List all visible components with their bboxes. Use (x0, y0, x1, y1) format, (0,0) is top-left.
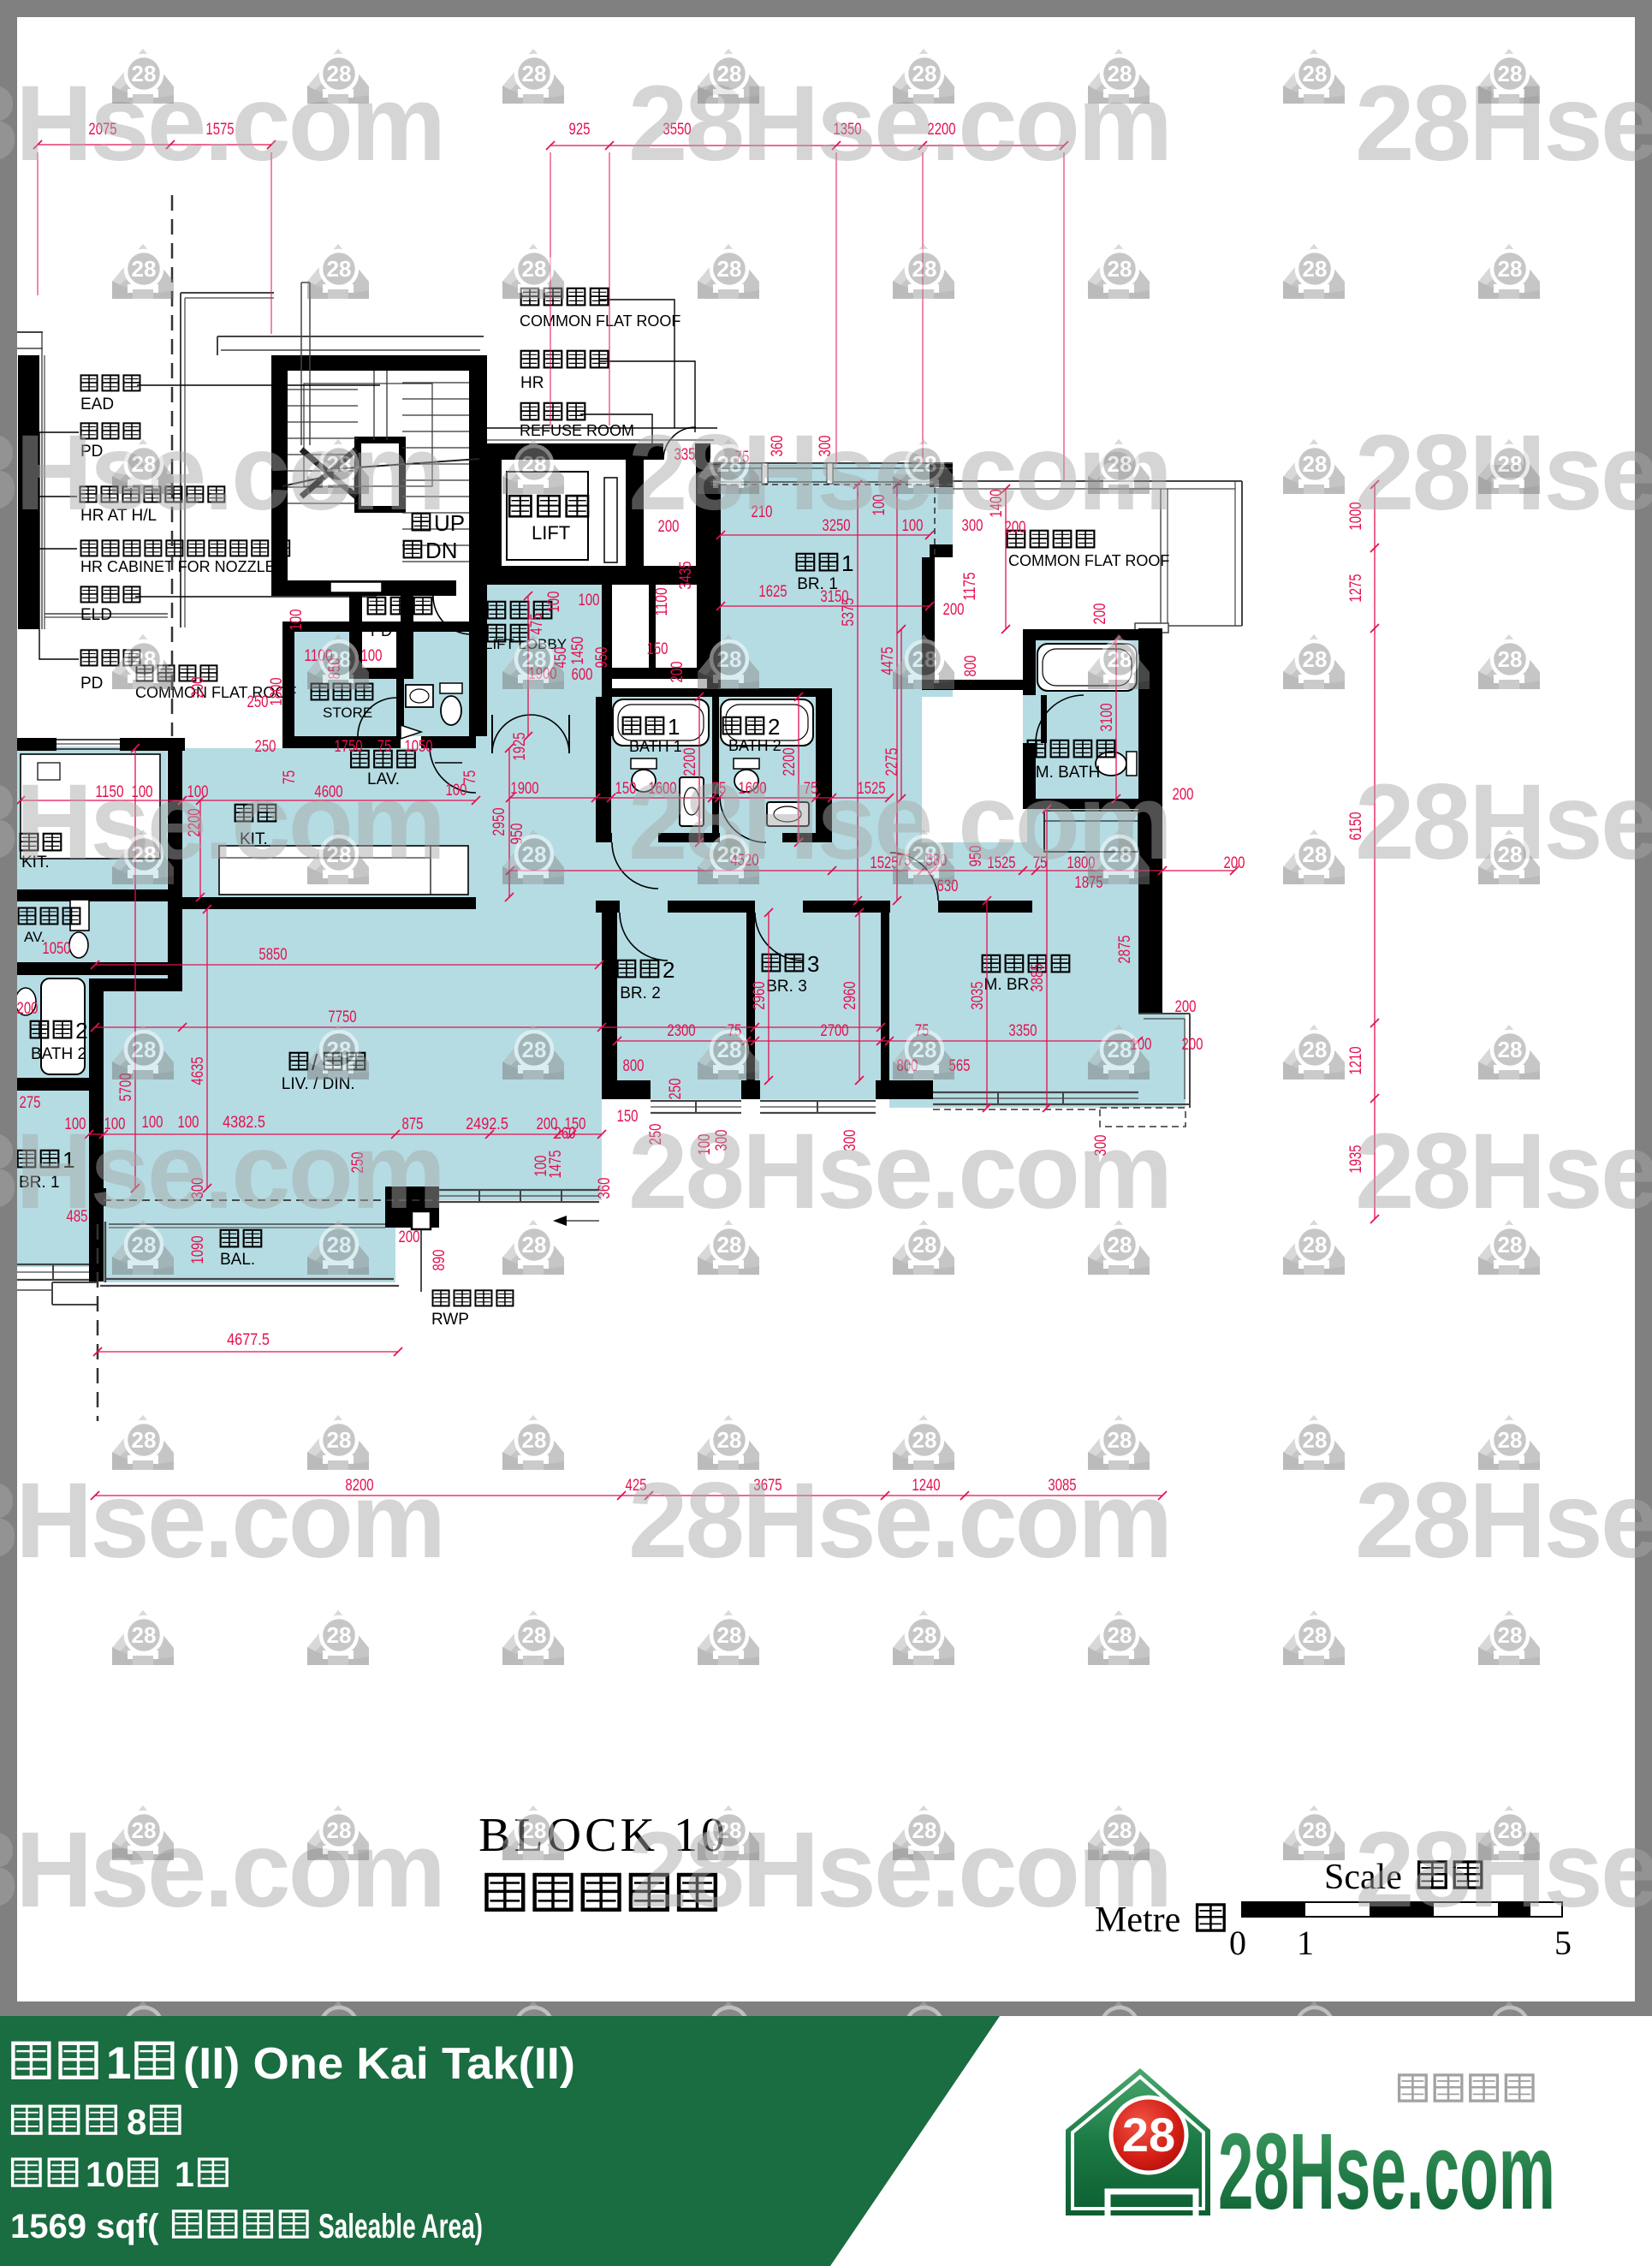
svg-text:100: 100 (288, 610, 306, 631)
svg-text:200: 200 (189, 677, 207, 699)
svg-text:200: 200 (399, 1228, 420, 1246)
svg-text:275: 275 (20, 1094, 41, 1112)
svg-text:150: 150 (647, 640, 669, 658)
svg-text:BAL.: BAL. (220, 1251, 255, 1269)
svg-text:28Hse.com: 28Hse.com (0, 64, 443, 183)
svg-text:1925: 1925 (511, 732, 529, 760)
svg-text:28Hse.com: 28Hse.com (628, 1461, 1170, 1580)
svg-text:200: 200 (1182, 1036, 1203, 1054)
svg-text:REFUSE ROOM: REFUSE ROOM (520, 422, 634, 439)
svg-text:BR. 2: BR. 2 (620, 984, 661, 1002)
svg-text:4677.5: 4677.5 (227, 1331, 270, 1349)
svg-text:200: 200 (1173, 786, 1194, 804)
svg-text:1090: 1090 (189, 1235, 207, 1264)
svg-text:2300: 2300 (667, 1022, 695, 1040)
svg-text:2: 2 (768, 714, 780, 740)
svg-text:1900: 1900 (510, 780, 538, 798)
svg-text:475: 475 (528, 614, 546, 635)
svg-text:10: 10 (86, 2155, 125, 2194)
svg-text:800: 800 (962, 656, 980, 677)
svg-text:600: 600 (572, 666, 593, 684)
svg-text:1: 1 (668, 714, 680, 740)
svg-text:1275: 1275 (1347, 574, 1365, 602)
svg-text:DN: DN (425, 538, 458, 563)
svg-text:28Hse.com: 28Hse.com (0, 1112, 443, 1231)
svg-text:100: 100 (532, 1156, 550, 1177)
svg-text:800: 800 (623, 1057, 645, 1075)
svg-text:3: 3 (807, 951, 819, 977)
svg-text:3350: 3350 (1008, 1022, 1037, 1040)
svg-text:1450: 1450 (569, 636, 587, 664)
svg-text:1: 1 (106, 2038, 131, 2089)
svg-text:BR. 3: BR. 3 (766, 978, 807, 996)
svg-text:890: 890 (431, 1250, 449, 1271)
svg-text:COMMON FLAT ROOF: COMMON FLAT ROOF (520, 312, 680, 330)
svg-text:28Hse.com: 28Hse.com (628, 1112, 1170, 1231)
svg-text:1: 1 (1297, 1924, 1314, 1962)
svg-text:RWP: RWP (431, 1311, 469, 1329)
svg-text:2492.5: 2492.5 (466, 1115, 508, 1133)
svg-text:STORE: STORE (323, 705, 372, 721)
svg-text:28Hse.com: 28Hse.com (1218, 2111, 1555, 2232)
svg-text:PD: PD (371, 622, 392, 639)
svg-text:28Hse.com: 28Hse.com (1355, 1112, 1652, 1231)
svg-text:200: 200 (1175, 998, 1197, 1016)
svg-text:28Hse.com: 28Hse.com (0, 413, 443, 532)
svg-text:3885: 3885 (1029, 963, 1047, 991)
svg-text:260: 260 (555, 1125, 576, 1143)
svg-text:2960: 2960 (841, 981, 859, 1009)
svg-text:3435: 3435 (677, 561, 695, 589)
svg-text:200: 200 (17, 1000, 39, 1018)
svg-text:28Hse.com: 28Hse.com (0, 1811, 443, 1930)
svg-text:3035: 3035 (969, 981, 987, 1009)
svg-text:200: 200 (1091, 604, 1109, 625)
svg-text:1050: 1050 (404, 738, 432, 756)
svg-text:200: 200 (1224, 854, 1245, 872)
svg-text:BATH 1: BATH 1 (629, 738, 682, 755)
svg-text:HR: HR (520, 374, 544, 392)
svg-text:100: 100 (361, 647, 383, 665)
svg-text:ELD: ELD (80, 606, 112, 624)
svg-text:950: 950 (593, 647, 611, 669)
svg-text:200: 200 (669, 662, 686, 683)
svg-text:COMMON FLAT ROOF: COMMON FLAT ROOF (1008, 552, 1169, 569)
svg-text:28Hse.com: 28Hse.com (0, 1461, 443, 1580)
svg-text:1750: 1750 (334, 738, 362, 756)
svg-text:PD: PD (80, 675, 103, 693)
svg-text:28Hse.com: 28Hse.com (1355, 1461, 1652, 1580)
svg-text:28Hse.com: 28Hse.com (0, 763, 443, 882)
svg-text:2950: 2950 (490, 807, 508, 836)
svg-text:200: 200 (943, 601, 965, 619)
svg-text:(II) One Kai Tak(II): (II) One Kai Tak(II) (183, 2039, 575, 2089)
svg-text:EAD: EAD (80, 396, 114, 413)
svg-text:1: 1 (175, 2155, 194, 2194)
svg-text:Saleable Area): Saleable Area) (318, 2208, 483, 2245)
svg-text:3100: 3100 (1098, 703, 1116, 731)
svg-text:250: 250 (255, 738, 276, 756)
svg-text:8: 8 (127, 2102, 146, 2142)
svg-text:2875: 2875 (1116, 935, 1134, 963)
svg-text:5850: 5850 (258, 946, 287, 964)
svg-text:1175: 1175 (961, 572, 979, 600)
svg-text:28: 28 (1122, 2108, 1175, 2162)
svg-text:1: 1 (841, 550, 853, 576)
svg-text:BATH 2: BATH 2 (31, 1045, 86, 1063)
svg-text:1569 sqf(: 1569 sqf( (10, 2208, 159, 2245)
svg-text:100: 100 (545, 592, 563, 613)
svg-text:1800: 1800 (268, 677, 286, 705)
svg-text:100: 100 (446, 782, 467, 800)
svg-text:M. BR.: M. BR. (984, 976, 1034, 994)
svg-text:2: 2 (663, 957, 674, 983)
svg-text:HR CABINET FOR NOZZLE: HR CABINET FOR NOZZLE (80, 558, 276, 575)
svg-text:925: 925 (569, 121, 591, 139)
svg-text:75: 75 (377, 738, 392, 756)
svg-text:1050: 1050 (42, 940, 70, 958)
svg-text:4635: 4635 (189, 1056, 207, 1085)
svg-text:250: 250 (667, 1079, 685, 1100)
svg-text:2: 2 (75, 1018, 87, 1044)
svg-text:250: 250 (247, 693, 269, 711)
svg-text:2960: 2960 (751, 981, 769, 1009)
svg-text:2700: 2700 (820, 1022, 848, 1040)
svg-text:360: 360 (596, 1178, 614, 1199)
svg-text:LIFT: LIFT (532, 522, 570, 544)
svg-text:1210: 1210 (1347, 1046, 1365, 1074)
svg-text:0: 0 (1229, 1924, 1246, 1962)
svg-text:1100: 1100 (653, 587, 671, 616)
svg-text:7750: 7750 (328, 1008, 356, 1026)
svg-text:5375: 5375 (840, 598, 858, 626)
svg-text:1625: 1625 (758, 583, 787, 601)
svg-text:100: 100 (579, 592, 600, 610)
svg-text:BATH 2: BATH 2 (728, 737, 781, 754)
